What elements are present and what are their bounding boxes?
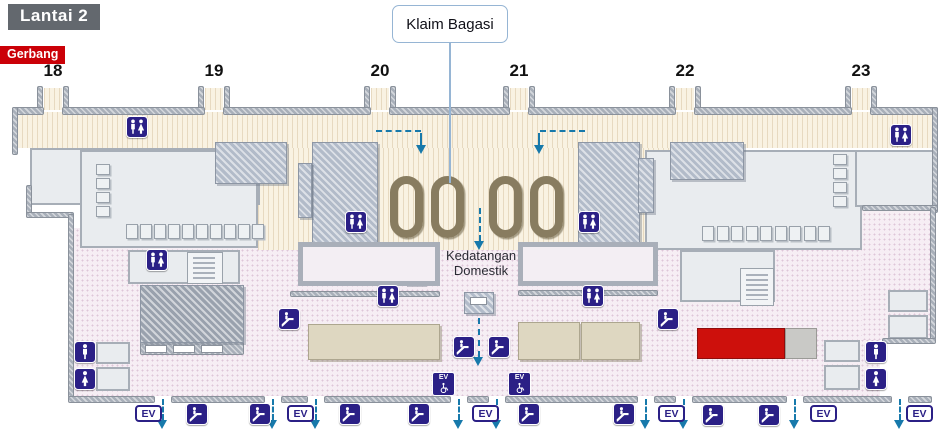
seat [760,226,772,241]
callout-pointer-line [449,43,451,183]
room [855,150,935,207]
seat [238,224,250,239]
gate-number: 19 [196,61,232,81]
seat [126,224,138,239]
seat [833,196,847,207]
baggage-carousel [390,176,423,238]
elevator-icon: EV [810,405,837,422]
seat [833,154,847,165]
wall-segment [932,107,938,213]
wall-segment [803,396,892,403]
gate-number: 20 [362,61,398,81]
stair-steps [746,274,768,300]
seat [717,226,729,241]
flow-arrow-tail [899,399,901,420]
arrival-hall [518,242,658,286]
stair-steps [193,257,215,279]
escalator-icon [186,403,208,425]
floor-label: Lantai 2 [8,4,100,30]
arrival-hall [298,242,440,286]
wall-segment [930,207,936,340]
room [128,250,240,284]
wall-segment [223,107,371,115]
utility-block [140,285,244,343]
escalator-icon [702,404,724,426]
seat [731,226,743,241]
jetbridge-corridor [510,88,528,110]
wall-segment [654,396,676,403]
seat [224,224,236,239]
baggage-carousel [489,176,522,238]
elevator-icon: EV [287,405,314,422]
seat [196,224,208,239]
seat [804,226,816,241]
seat [96,164,110,175]
flow-elbow-tail [376,130,421,132]
restroom-mf-icon [126,116,148,138]
flow-arrow-head [453,420,463,429]
arrival-label-line2: Domestik [426,263,536,278]
wall-segment [528,107,676,115]
escalator-icon [408,403,430,425]
wall-segment [26,212,74,218]
baggage-carousel [530,176,563,238]
gate-number: 21 [501,61,537,81]
restroom-mf-icon [890,124,912,146]
elevator-icon: EV [472,405,499,422]
wall-segment [324,396,451,403]
flow-arrow-tail [478,318,480,357]
jetbridge-corridor [371,88,389,110]
jetbridge-corridor [676,88,694,110]
restroom-mf-icon [578,211,600,233]
restroom-women-icon [865,368,887,390]
flow-arrow-tail [645,399,647,420]
seat [96,178,110,189]
wall-segment [862,205,938,211]
seat [789,226,801,241]
restroom-mf-icon [345,211,367,233]
room [96,367,130,391]
service-block [670,142,744,180]
flow-arrow-head [894,420,904,429]
highlighted-area [697,328,785,359]
arrival-label-line1: Kedatangan [426,248,536,263]
wall-segment [692,396,787,403]
room [888,315,928,339]
wall-segment [68,396,155,403]
seat [140,224,152,239]
restroom-mf-icon [146,249,168,271]
service-block [312,142,378,248]
escalator-icon [339,403,361,425]
elevator-icon: EV [658,405,685,422]
jetbridge-corridor [852,88,870,110]
gate-number: 18 [35,61,71,81]
accessible-elevator-icon: EV [508,372,531,396]
seat [154,224,166,239]
room [824,365,860,390]
seat [96,192,110,203]
escalator-icon [657,308,679,330]
flow-arrow-tail [479,208,481,241]
wall-segment [908,396,932,403]
counter-end [785,328,817,359]
counter [308,324,440,360]
door-slot [145,345,167,353]
gate-section-label: Gerbang [0,46,65,64]
wall-segment [505,396,638,403]
restroom-men-icon [74,341,96,363]
escalator-icon [278,308,300,330]
jetbridge-corridor [44,88,62,110]
seat [833,168,847,179]
escalator-icon [488,336,510,358]
counter [581,322,640,360]
escalator-icon [758,404,780,426]
wall-segment [694,107,852,115]
seat [702,226,714,241]
jetbridge-corridor [205,88,223,110]
door-slot [201,345,223,353]
elevator-icon: EV [135,405,162,422]
floor-area-concourse [12,112,938,148]
airport-floor-map: Lantai 2 Gerbang Klaim Bagasi 1819202122… [0,0,950,433]
restroom-mf-icon [377,285,399,307]
seat [210,224,222,239]
wall-segment [870,107,938,115]
flow-elbow-head [534,145,544,154]
door-slot [173,345,195,353]
seat [168,224,180,239]
seat [252,224,264,239]
baggage-claim-callout: Klaim Bagasi [392,5,508,43]
flow-elbow-tail [540,130,585,132]
flow-arrow-tail [794,399,796,420]
room [888,290,928,312]
seat [746,226,758,241]
flow-elbow-head [416,145,426,154]
escalator-icon [613,403,635,425]
escalator-icon [453,336,475,358]
restroom-women-icon [74,368,96,390]
elevator-icon: EV [906,405,933,422]
flow-elbow-tail [420,133,422,145]
wall-segment [467,396,489,403]
gate-number: 22 [667,61,703,81]
wall-segment [290,291,440,297]
flow-arrow-head [640,420,650,429]
service-block [298,163,312,218]
escalator-icon [249,403,271,425]
flow-arrow-head [473,357,483,366]
seat [96,206,110,217]
service-block [215,142,287,184]
door-slot [470,297,487,305]
wall-segment [12,107,18,155]
escalator-icon [518,403,540,425]
seat [818,226,830,241]
flow-arrow-head [789,420,799,429]
restroom-men-icon [865,341,887,363]
counter [518,322,580,360]
wall-segment [62,107,205,115]
gate-number: 23 [843,61,879,81]
flow-arrow-tail [272,399,274,420]
seat [775,226,787,241]
room [96,342,130,364]
service-block [638,158,654,213]
baggage-carousel [431,176,464,238]
seat [182,224,194,239]
wall-segment [882,338,936,344]
restroom-mf-icon [582,285,604,307]
accessible-elevator-icon: EV [432,372,455,396]
wall-segment [281,396,308,403]
flow-arrow-tail [458,399,460,420]
room [824,340,860,362]
arrival-label: KedatanganDomestik [426,248,536,278]
flow-elbow-tail [538,133,540,145]
wall-segment [171,396,265,403]
flow-arrow-tail [315,399,317,420]
seat [833,182,847,193]
flow-arrow-tail [162,399,164,420]
